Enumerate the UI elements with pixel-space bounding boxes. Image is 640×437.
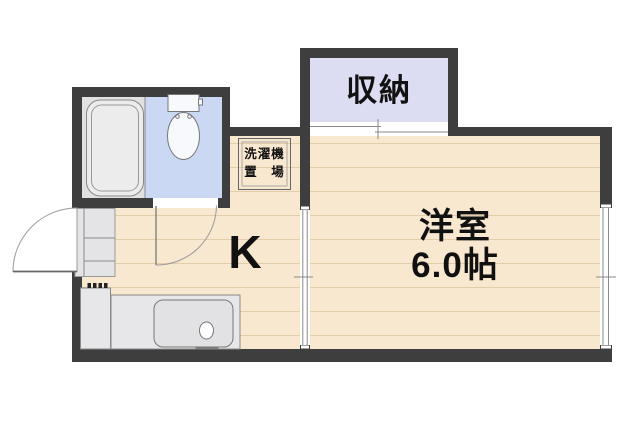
floor-plan: 収納 洋室6.0帖 K 洗濯機置 場 — [0, 0, 640, 437]
entrance-step — [75, 209, 115, 277]
western-room-name: 洋室 — [419, 207, 491, 246]
closet-sliding-door — [310, 119, 448, 139]
entrance-door — [13, 208, 77, 272]
kitchen-sink-icon — [111, 295, 240, 349]
laundry-space-label: 洗濯機置 場 — [238, 146, 291, 181]
kitchen-label: K — [220, 228, 270, 276]
western-room-label: 洋室6.0帖 — [310, 207, 600, 285]
bathtub-icon — [87, 100, 144, 196]
gas-stove-icon — [81, 283, 111, 349]
bathroom-door-opening — [153, 198, 218, 208]
closet-label: 収納 — [300, 74, 458, 108]
western-room-size: 6.0帖 — [411, 246, 499, 285]
